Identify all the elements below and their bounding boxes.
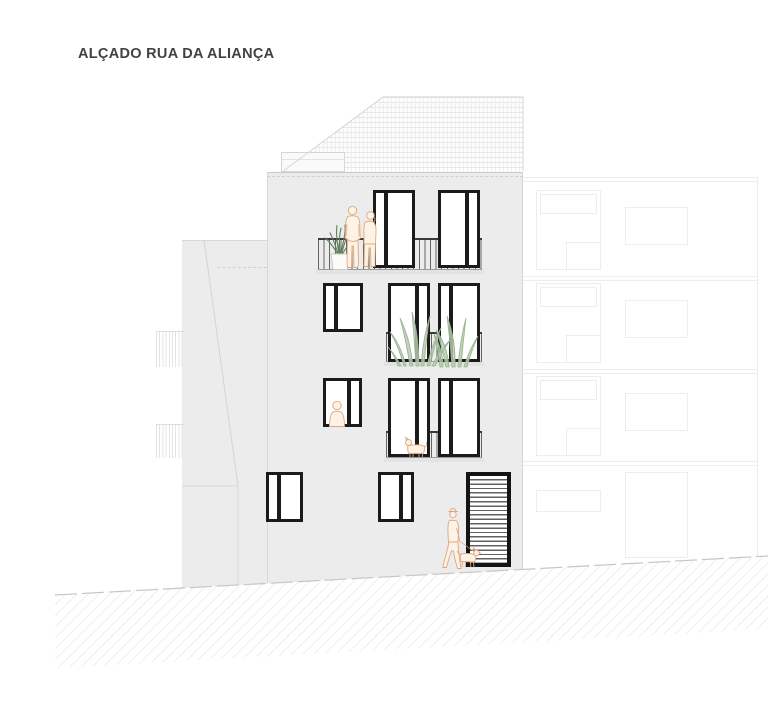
elevation-drawing: ALÇADO RUA DA ALIANÇA (0, 0, 780, 709)
person-window-icon (330, 401, 345, 426)
fern-plants-icon (388, 312, 478, 367)
person-balcony-left-icon (345, 206, 360, 267)
person-walking-icon (443, 508, 461, 568)
person-balcony-right-icon (364, 212, 376, 267)
scale-figures (0, 0, 780, 709)
dog-leash-icon (458, 541, 482, 568)
dog-balcony-icon (406, 438, 427, 458)
